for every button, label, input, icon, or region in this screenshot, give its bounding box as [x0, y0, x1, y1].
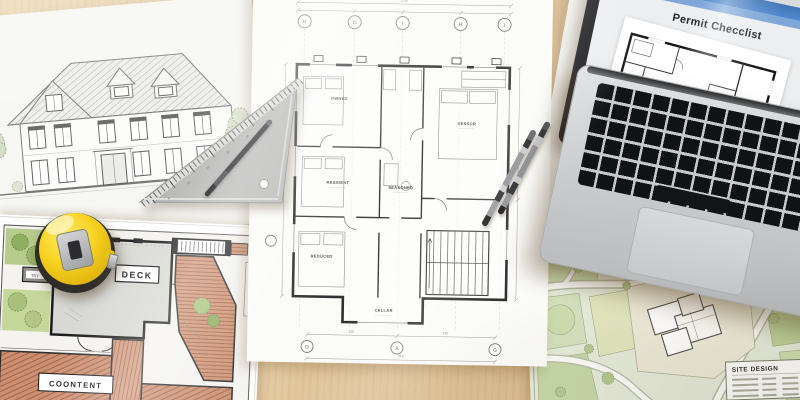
set-square: 5 10 15 20 25 30: [112, 68, 332, 218]
dim-label-total: 316: [398, 354, 404, 358]
dim-label-top: 1150: [400, 0, 408, 3]
svg-text:G: G: [493, 348, 497, 354]
deck-label: DECK: [121, 269, 152, 280]
map-legend: SITE DESIGN: [725, 359, 800, 400]
trackpad: [626, 206, 756, 297]
tape-measure: [35, 213, 115, 293]
svg-text:H: H: [459, 22, 463, 28]
desk-scene: 1150 150 130 316 H O I H I: [0, 0, 800, 400]
svg-text:A: A: [395, 346, 399, 352]
spacebar-key: [654, 185, 731, 214]
grid-letters-top: H O I H I: [303, 19, 506, 29]
svg-text:H: H: [303, 19, 307, 25]
room-label-cellar: CELLAR: [375, 308, 393, 313]
page-title: Permit Checclist: [598, 0, 800, 58]
browser-titlebar: [607, 0, 800, 17]
room-label-r1: OWNED: [331, 96, 348, 101]
svg-text:I: I: [504, 23, 505, 29]
grid-bubbles-bottom: [301, 340, 501, 355]
column-stubs: [314, 55, 501, 64]
left-tree: [0, 122, 10, 196]
set-square-drawing: 5 10 15 20 25 30: [112, 68, 332, 218]
browser-subnav: [602, 0, 800, 37]
svg-text:I: I: [402, 21, 403, 27]
svg-text:D: D: [305, 344, 309, 350]
room-label-hall: SEASONED: [388, 185, 413, 190]
svg-text:O: O: [353, 20, 357, 26]
laptop-keyboard: [577, 82, 800, 237]
dim-label-b: 130: [442, 331, 448, 335]
room-label-r4: VESSOR: [458, 121, 477, 126]
room-label-r3: REDUCED: [311, 253, 333, 258]
dim-label-a: 150: [348, 330, 354, 334]
set-square-hole: [260, 180, 269, 189]
browser-navbar: [604, 0, 800, 30]
content-label-box: COONTENT: [38, 373, 113, 394]
